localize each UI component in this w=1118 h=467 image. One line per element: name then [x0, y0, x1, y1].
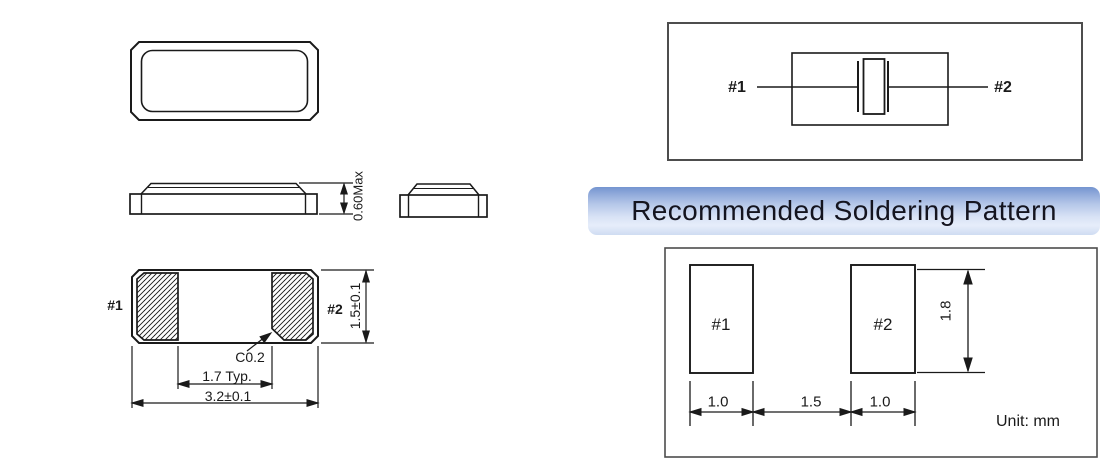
bottom-view-pad2-label: #2: [327, 301, 343, 317]
bottom-view-pad1-label: #1: [107, 297, 123, 313]
pad1-width-dim-label: 1.0: [708, 394, 729, 411]
pad2-hatched: [272, 273, 313, 340]
pad-span-dim-label: 1.7 Typ.: [202, 368, 252, 384]
package-side-view-short: [400, 184, 487, 217]
gap-dim-label: 1.5: [801, 394, 822, 411]
chamfer-dim-label: C0.2: [235, 349, 265, 365]
circuit-terminal2-label: #2: [994, 79, 1012, 97]
pad2-width-dim-label: 1.0: [870, 394, 891, 411]
pad1-hatched: [137, 273, 178, 340]
width-dim-label: 1.5±0.1: [347, 283, 363, 330]
length-dim-label: 3.2±0.1: [205, 388, 252, 404]
height-dim-label: 0.60Max: [351, 171, 366, 221]
solder-pad1-label: #1: [712, 315, 731, 335]
crystal-element: [864, 59, 885, 114]
soldering-pattern-header: Recommended Soldering Pattern: [588, 187, 1100, 235]
package-bottom-view: [132, 270, 318, 343]
unit-note: Unit: mm: [996, 413, 1060, 431]
circuit-terminal1-label: #1: [728, 79, 746, 97]
solder-pad2-label: #2: [874, 315, 893, 335]
datasheet-drawing-page: 0.60Max #1 #2 C0.2 1.7 Typ. 3.2±0.1 1.5±…: [0, 0, 1118, 467]
package-side-view-long: [130, 184, 317, 215]
package-top-view: [131, 42, 318, 120]
soldering-pattern-title: Recommended Soldering Pattern: [631, 195, 1057, 227]
pad-height-dim-label: 1.8: [938, 301, 955, 322]
